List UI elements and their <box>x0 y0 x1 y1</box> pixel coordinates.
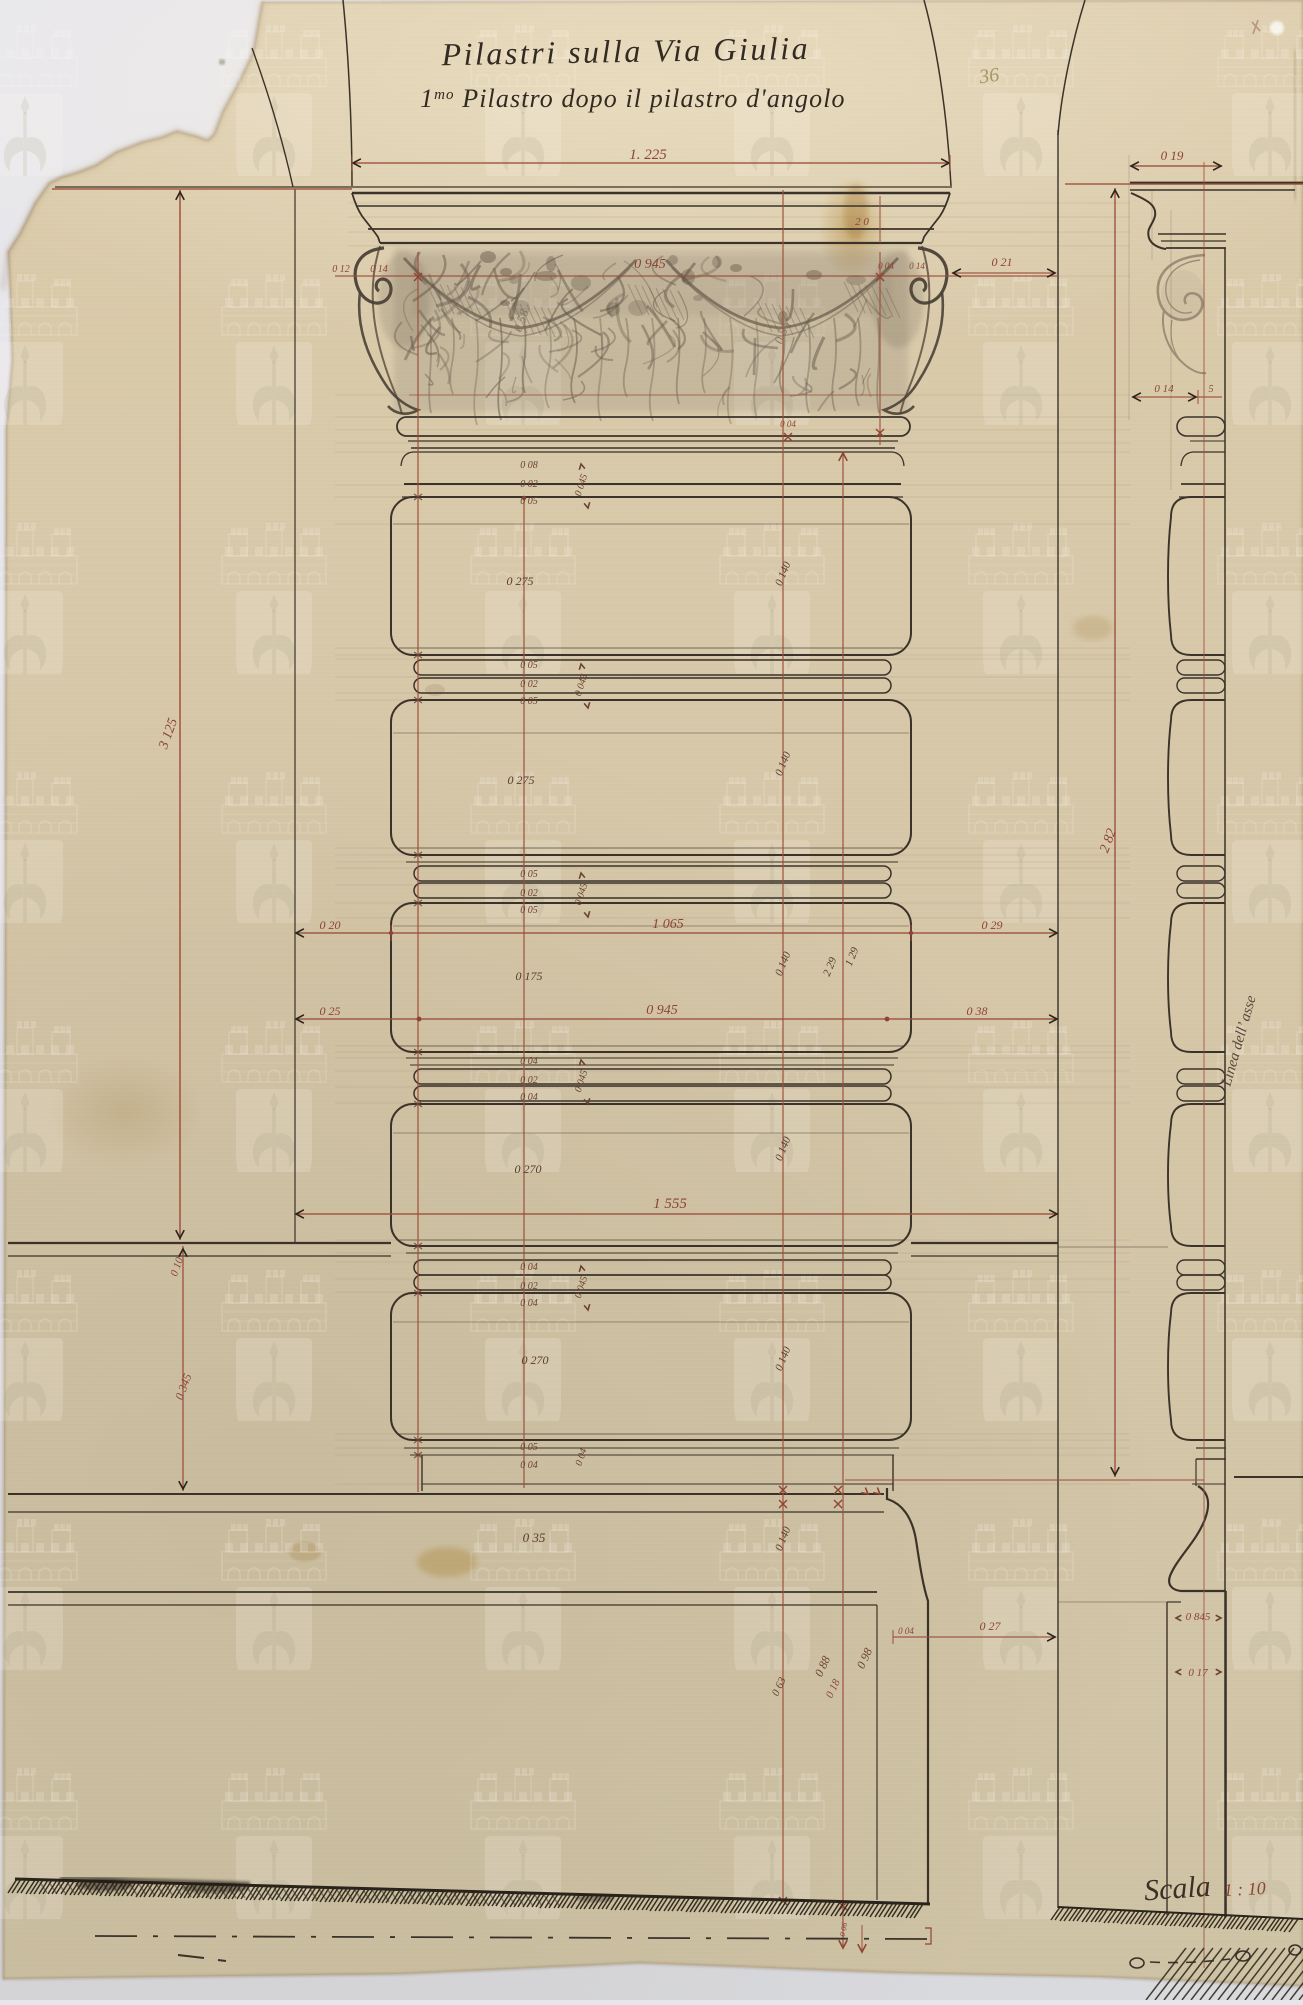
svg-text:1 555: 1 555 <box>653 1196 687 1212</box>
svg-text:1mo Pilastro dopo il pilastro: 1mo Pilastro dopo il pilastro d'angolo <box>420 84 846 113</box>
svg-text:0 02: 0 02 <box>520 1281 538 1292</box>
svg-text:0 05: 0 05 <box>520 496 538 507</box>
svg-text:0 02: 0 02 <box>520 479 538 490</box>
svg-text:0 04: 0 04 <box>520 1092 538 1103</box>
svg-text:1 : 10: 1 : 10 <box>1223 1878 1266 1900</box>
svg-text:0 05: 0 05 <box>520 660 538 671</box>
svg-text:0 21: 0 21 <box>992 255 1013 269</box>
svg-text:0 04: 0 04 <box>520 1056 538 1067</box>
svg-text:0 945: 0 945 <box>634 257 666 272</box>
svg-text:0 12: 0 12 <box>332 264 350 275</box>
svg-text:0 275: 0 275 <box>507 574 534 588</box>
svg-text:5: 5 <box>1209 384 1214 395</box>
svg-text:0 04: 0 04 <box>898 1626 914 1636</box>
svg-text:0 04: 0 04 <box>520 1460 538 1471</box>
svg-text:0 270: 0 270 <box>522 1353 549 1367</box>
svg-text:0 38: 0 38 <box>967 1004 988 1018</box>
svg-text:0 19: 0 19 <box>1161 148 1184 163</box>
svg-text:Scala: Scala <box>1143 1870 1212 1908</box>
svg-text:0 05: 0 05 <box>520 1442 538 1453</box>
svg-text:0 02: 0 02 <box>520 1075 538 1086</box>
svg-text:0 270: 0 270 <box>515 1162 542 1176</box>
svg-text:36: 36 <box>977 64 1001 89</box>
svg-text:2 0: 2 0 <box>855 216 869 228</box>
svg-text:0 14: 0 14 <box>909 261 925 271</box>
svg-text:0 02: 0 02 <box>520 679 538 690</box>
svg-text:0 945: 0 945 <box>646 1003 678 1018</box>
svg-text:0 08: 0 08 <box>520 460 538 471</box>
svg-text:0 29: 0 29 <box>982 918 1003 932</box>
svg-text:0 175: 0 175 <box>516 969 543 983</box>
svg-text:1. 225: 1. 225 <box>629 147 667 163</box>
svg-text:0 25: 0 25 <box>320 1004 341 1018</box>
svg-text:1 065: 1 065 <box>652 917 684 932</box>
svg-text:0 845: 0 845 <box>1186 1611 1211 1623</box>
svg-text:0 04: 0 04 <box>520 1298 538 1309</box>
svg-text:0 20: 0 20 <box>320 918 341 932</box>
svg-text:0 02: 0 02 <box>520 888 538 899</box>
svg-text:0 05: 0 05 <box>520 869 538 880</box>
svg-text:Pilastri sulla Via Giulia: Pilastri sulla Via Giulia <box>440 30 810 72</box>
svg-text:0 17: 0 17 <box>1188 1667 1208 1679</box>
svg-text:0 05: 0 05 <box>520 905 538 916</box>
svg-text:0 05: 0 05 <box>520 696 538 707</box>
svg-text:0 04: 0 04 <box>878 261 894 271</box>
svg-text:0 14: 0 14 <box>370 264 388 275</box>
svg-text:0 14: 0 14 <box>1154 383 1174 395</box>
svg-text:0 35: 0 35 <box>523 1530 546 1545</box>
svg-text:0 04: 0 04 <box>780 419 796 429</box>
svg-text:0 27: 0 27 <box>980 1619 1002 1633</box>
svg-text:0 275: 0 275 <box>508 773 535 787</box>
svg-text:0 04: 0 04 <box>520 1262 538 1273</box>
